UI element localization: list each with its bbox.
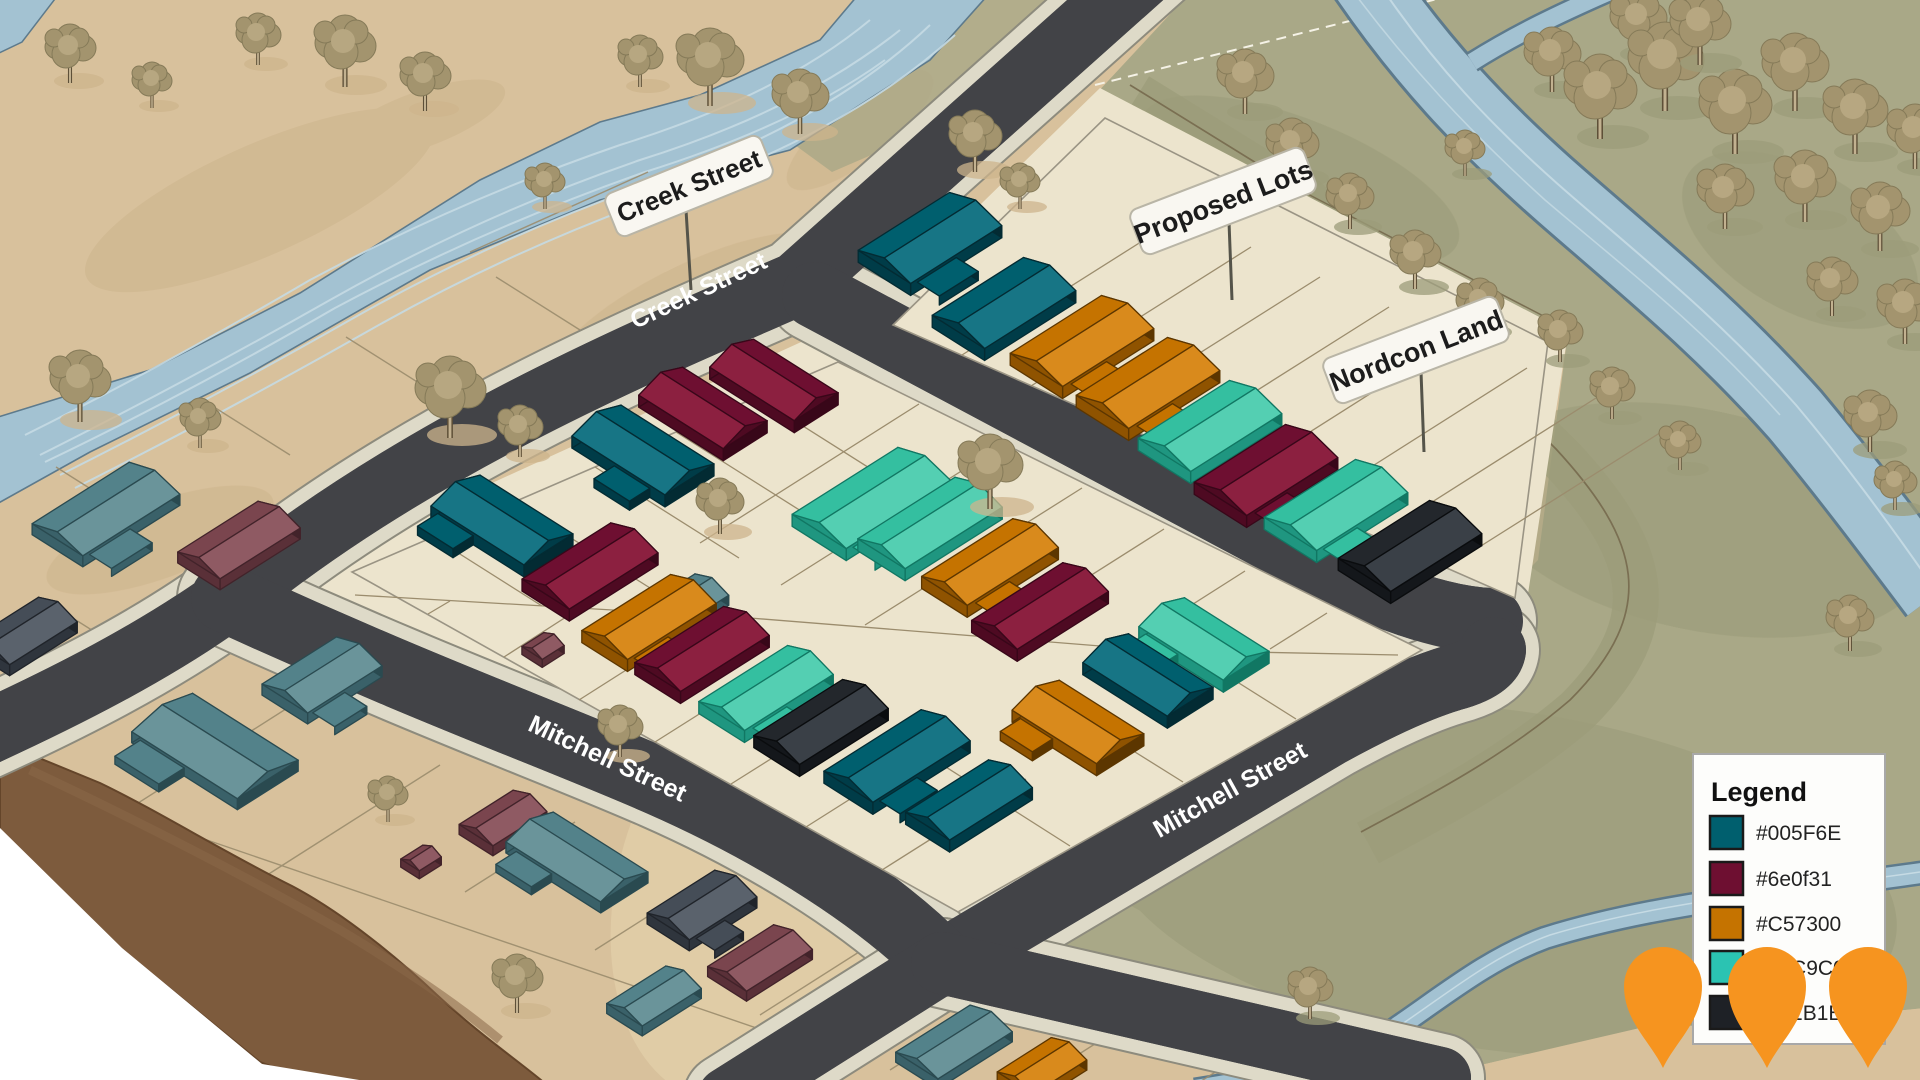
svg-text:#005F6E: #005F6E: [1756, 822, 1841, 845]
svg-text:Legend: Legend: [1711, 777, 1807, 807]
svg-text:#6e0f31: #6e0f31: [1756, 868, 1832, 891]
svg-text:#C57300: #C57300: [1756, 913, 1841, 936]
